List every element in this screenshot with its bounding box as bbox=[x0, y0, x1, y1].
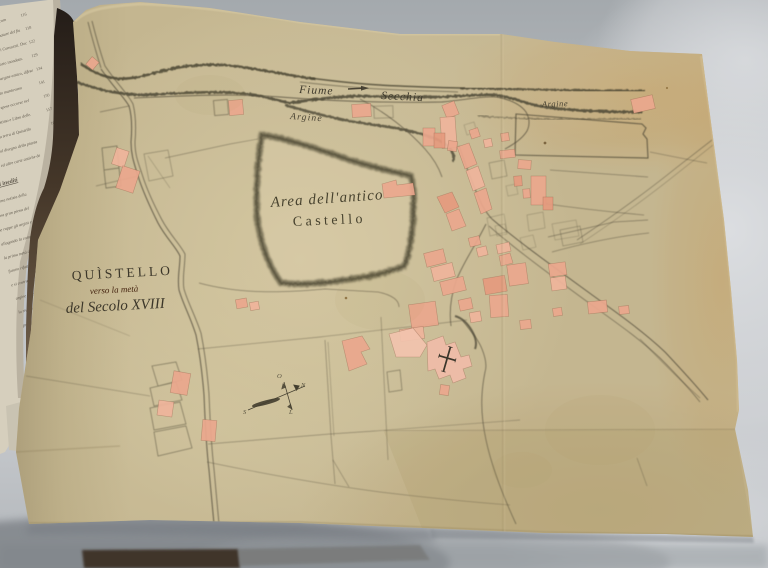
svg-text:Secchia: Secchia bbox=[381, 90, 424, 104]
svg-text:Castello: Castello bbox=[293, 212, 367, 230]
svg-text:L: L bbox=[288, 409, 293, 416]
svg-text:O: O bbox=[277, 373, 282, 380]
svg-text:N: N bbox=[300, 382, 306, 389]
svg-text:Argine: Argine bbox=[541, 98, 569, 109]
svg-text:Fiume: Fiume bbox=[298, 84, 334, 98]
